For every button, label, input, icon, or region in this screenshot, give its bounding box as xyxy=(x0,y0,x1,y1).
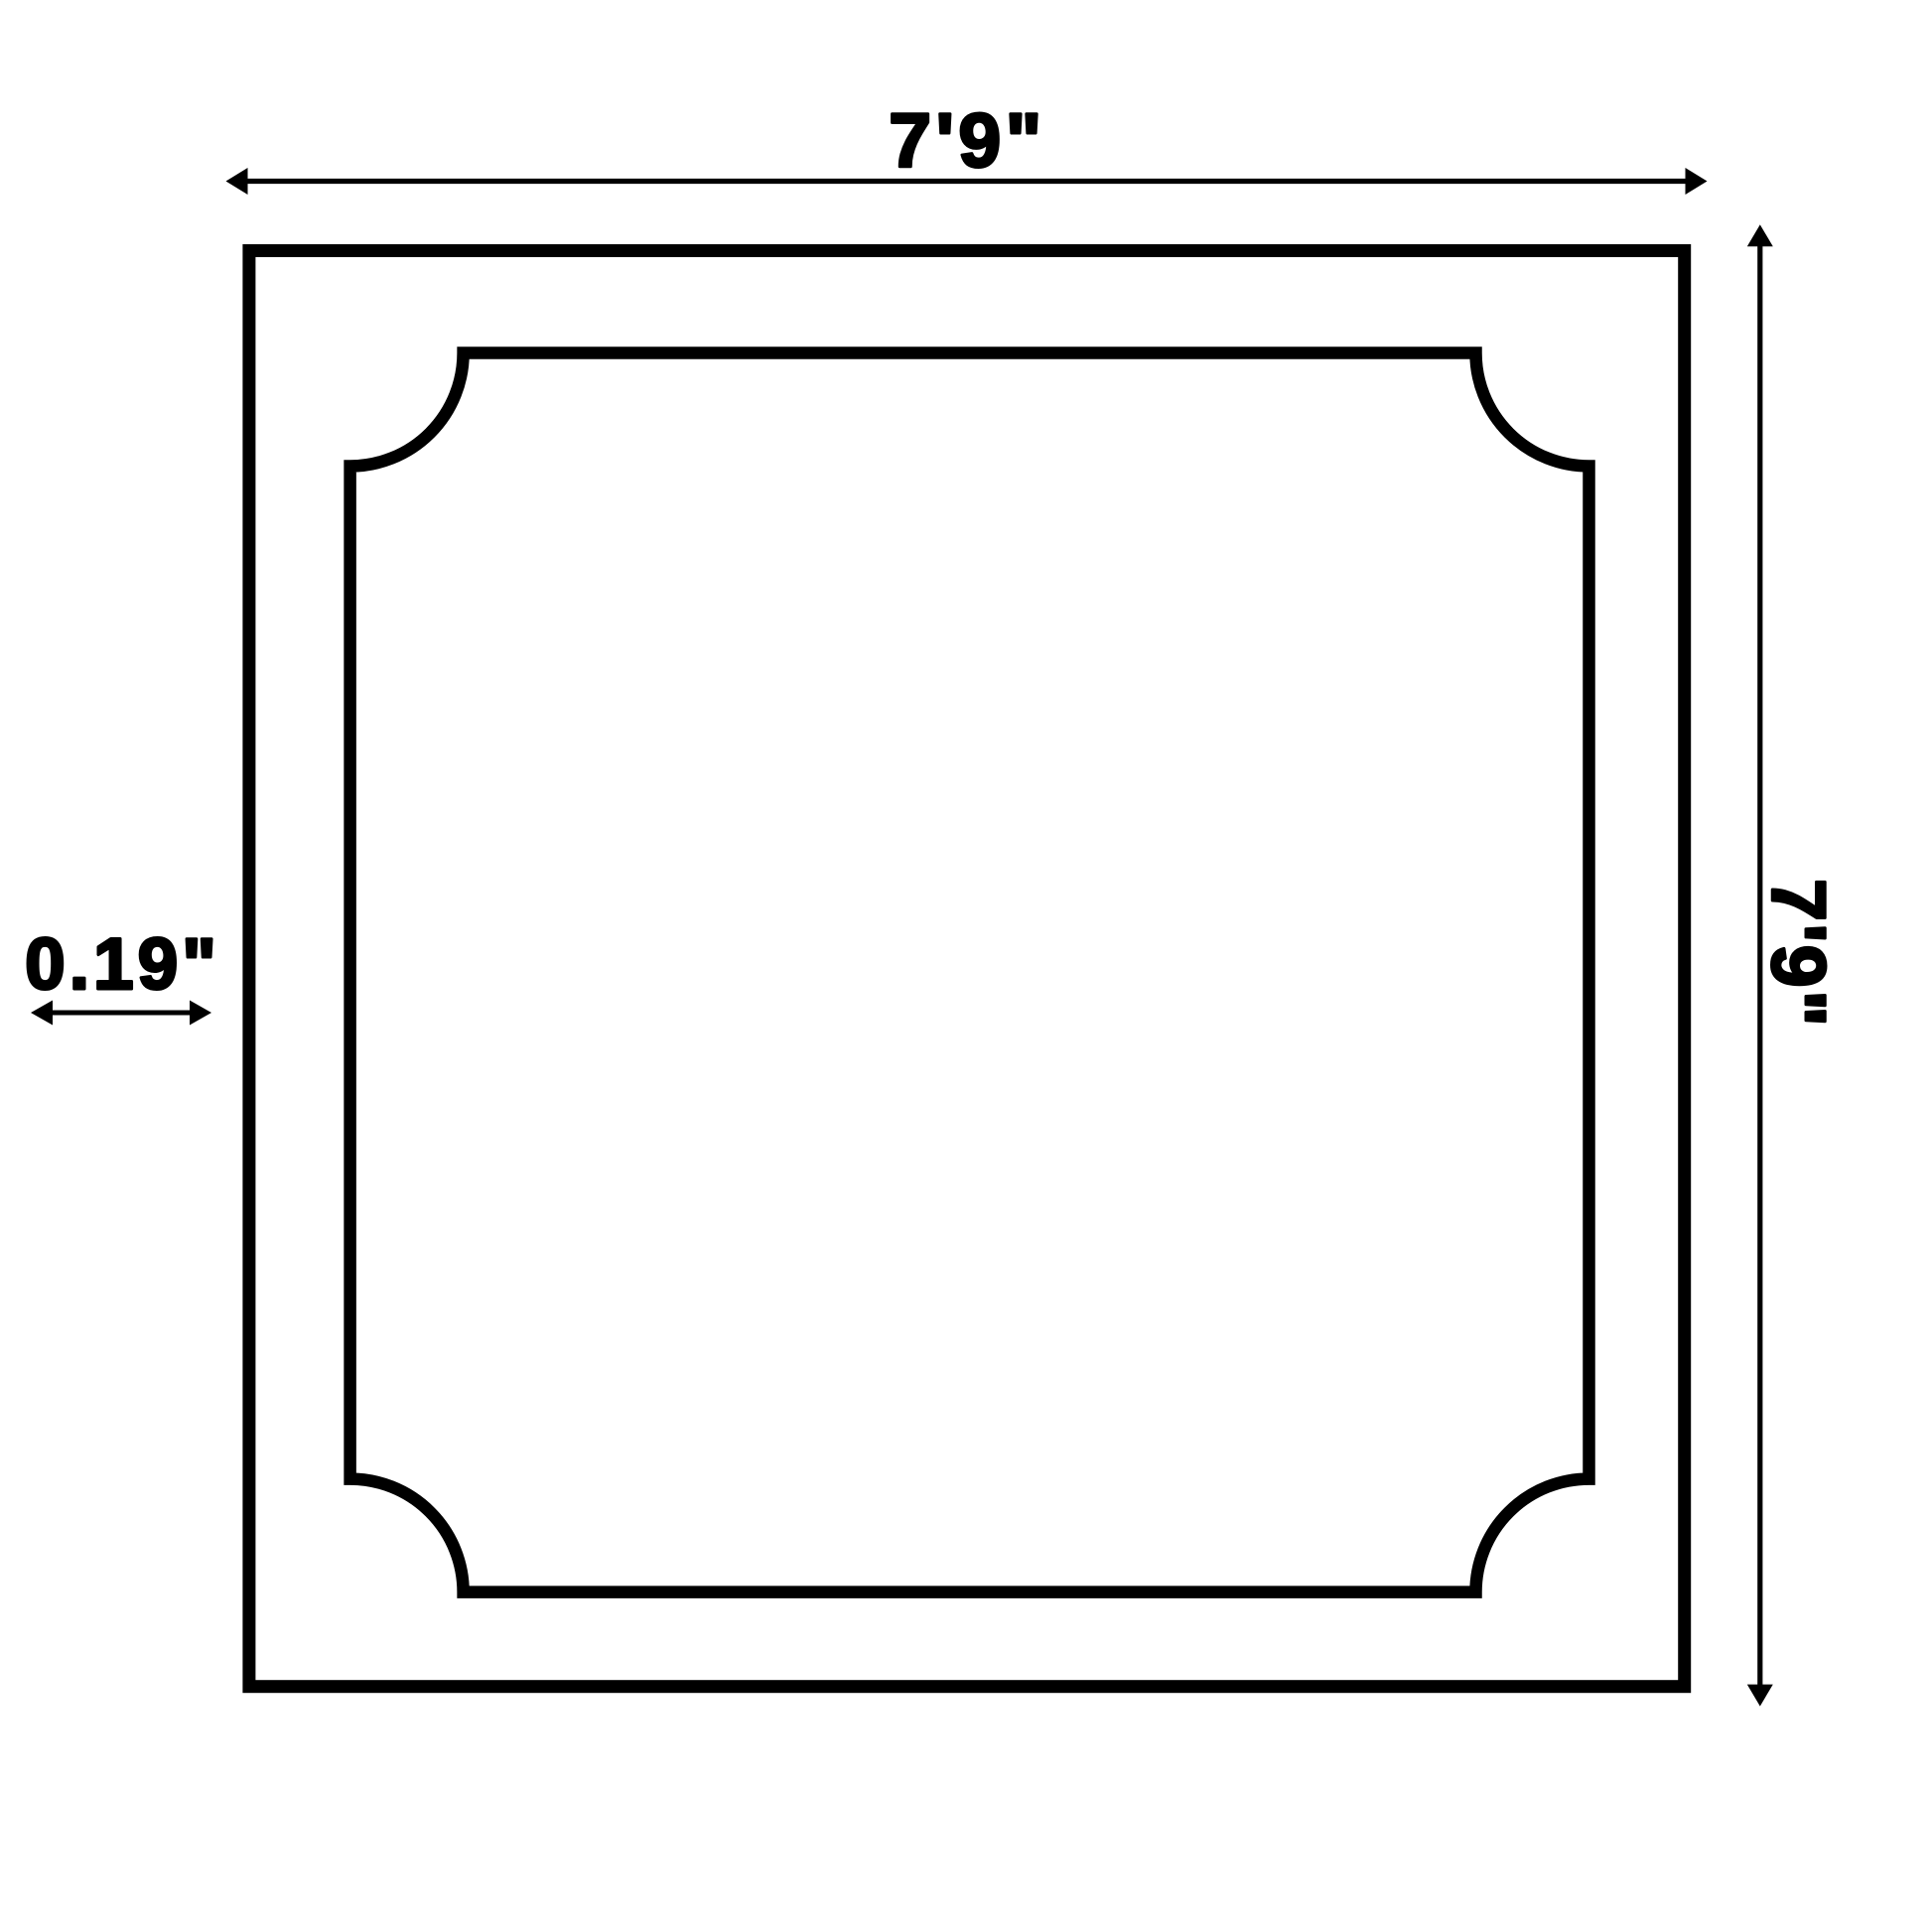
svg-text:7'9": 7'9" xyxy=(1755,879,1841,1030)
svg-text:7'9": 7'9" xyxy=(889,98,1045,184)
svg-text:0.19": 0.19" xyxy=(25,924,220,1005)
